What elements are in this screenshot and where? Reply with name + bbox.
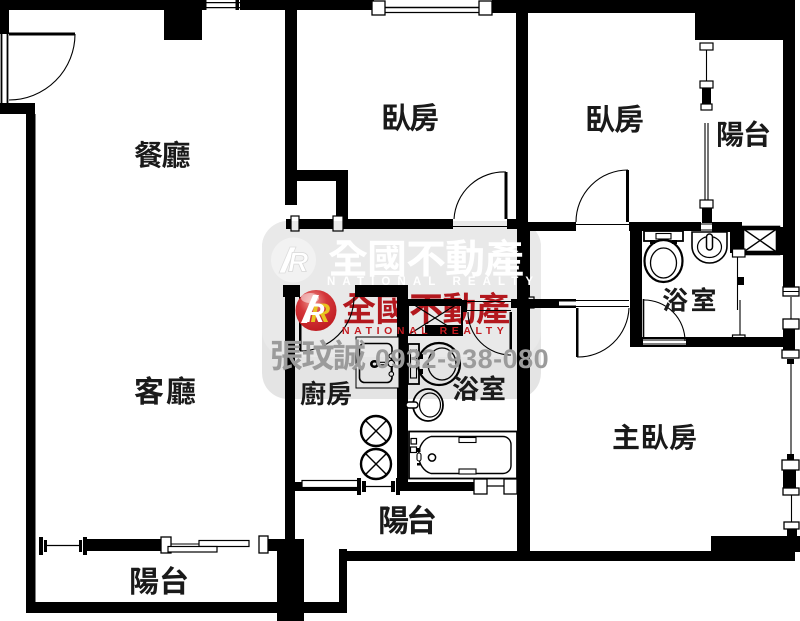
- svg-text:NATIONAL REALTY: NATIONAL REALTY: [342, 325, 508, 337]
- svg-text:R: R: [288, 247, 309, 278]
- svg-text:0932-938-080: 0932-938-080: [375, 344, 549, 374]
- svg-text:NATIONAL REALTY: NATIONAL REALTY: [327, 276, 540, 288]
- svg-text:R: R: [305, 298, 325, 328]
